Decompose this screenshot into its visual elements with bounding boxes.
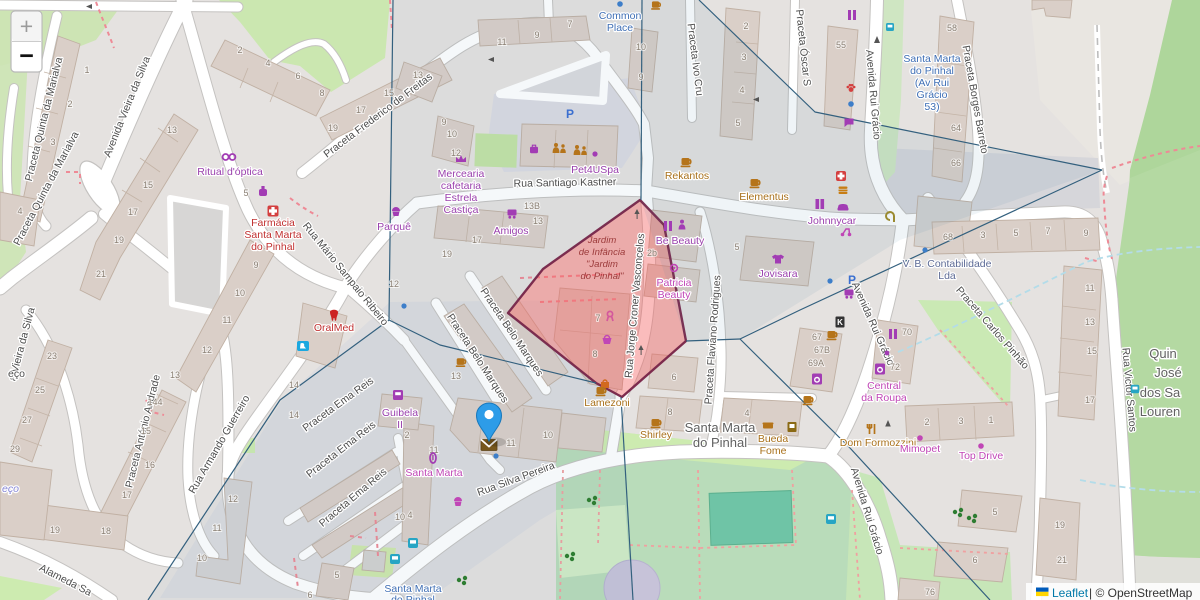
svg-text:3: 3 [741,52,746,62]
svg-text:8: 8 [319,88,324,98]
svg-text:17: 17 [128,207,138,217]
svg-text:9: 9 [1083,228,1088,238]
svg-text:4: 4 [17,206,22,216]
svg-text:67B: 67B [814,345,830,355]
svg-text:do Pinhal: do Pinhal [693,435,747,450]
svg-text:−: − [19,42,34,70]
svg-text:8: 8 [592,349,597,359]
svg-text:Castiça: Castiça [443,204,478,216]
svg-text:11: 11 [506,438,515,448]
svg-text:5: 5 [334,570,339,580]
svg-text:5: 5 [243,188,248,198]
svg-text:Quin: Quin [1149,346,1176,361]
svg-text:Santa Marta: Santa Marta [405,467,462,479]
svg-text:53): 53) [924,101,939,113]
svg-text:Santa Marta: Santa Marta [685,420,757,435]
svg-text:Louren: Louren [1140,404,1180,419]
svg-text:Johnnycar: Johnnycar [808,215,857,227]
svg-text:4: 4 [744,408,749,418]
svg-text:P: P [848,273,856,287]
svg-text:3: 3 [980,230,985,240]
svg-text:13: 13 [413,70,423,80]
svg-text:13: 13 [167,125,177,135]
svg-text:Leaflet: Leaflet [1052,586,1089,600]
svg-text:21: 21 [96,269,106,279]
svg-text:"Jardim: "Jardim [586,259,618,270]
svg-text:do Pinhal: do Pinhal [251,241,295,253]
svg-text:de Infância: de Infância [579,247,625,258]
svg-text:17: 17 [122,490,132,500]
svg-text:2: 2 [67,99,72,109]
svg-text:4: 4 [407,510,412,520]
svg-text:19: 19 [114,235,124,245]
svg-text:19: 19 [50,525,60,535]
svg-text:Central: Central [867,380,901,392]
svg-text:do Pinhal: do Pinhal [391,594,435,600]
svg-text:72: 72 [890,362,900,372]
svg-text:OralMed: OralMed [314,322,354,334]
svg-text:Mercearia: Mercearia [438,168,485,180]
svg-text:19: 19 [328,123,338,133]
svg-text:12: 12 [389,279,399,289]
svg-text:58: 58 [947,23,957,33]
svg-text:11: 11 [212,523,221,533]
svg-text:+: + [20,13,33,39]
svg-text:Shirley: Shirley [640,429,673,441]
svg-text:23: 23 [47,351,57,361]
svg-text:Guibela: Guibela [382,407,418,419]
svg-text:6: 6 [307,590,312,600]
svg-text:5: 5 [992,507,997,517]
svg-text:8: 8 [667,407,672,417]
svg-text:13: 13 [451,371,461,381]
svg-text:Be Beauty: Be Beauty [656,235,705,247]
svg-text:15: 15 [384,88,394,98]
svg-text:6: 6 [972,555,977,565]
svg-text:69A: 69A [808,358,824,368]
svg-text:10: 10 [235,288,245,298]
svg-text:10: 10 [197,553,207,563]
svg-text:da Roupa: da Roupa [861,392,907,404]
svg-text:2: 2 [237,45,242,55]
svg-text:7: 7 [1045,226,1050,236]
svg-text:16: 16 [145,460,155,470]
svg-text:7: 7 [595,313,600,323]
svg-text:1: 1 [988,415,993,425]
svg-text:| © OpenStreetMap: | © OpenStreetMap [1089,586,1193,600]
svg-text:Fome: Fome [760,445,787,457]
svg-text:Jardim: Jardim [587,235,617,246]
svg-text:Pet4USpa: Pet4USpa [571,164,619,176]
svg-text:4: 4 [739,85,744,95]
svg-text:K: K [837,318,843,327]
svg-text:76: 76 [925,587,935,597]
svg-text:68: 68 [943,232,953,242]
svg-text:5: 5 [734,242,739,252]
svg-text:6: 6 [671,372,676,382]
svg-text:12: 12 [228,494,238,504]
svg-text:Ritual d'óptica: Ritual d'óptica [197,166,263,178]
svg-text:3: 3 [958,416,963,426]
svg-text:dos Sa: dos Sa [1140,385,1181,400]
svg-text:II: II [397,419,403,431]
svg-text:Rekantos: Rekantos [665,170,709,182]
svg-text:11: 11 [497,37,506,47]
svg-text:Farmácia: Farmácia [251,217,295,229]
svg-text:70: 70 [902,327,912,337]
svg-text:P: P [566,107,574,121]
svg-text:cafetaria: cafetaria [441,180,481,192]
svg-text:eço: eço [8,368,25,380]
svg-text:do Pinhal: do Pinhal [910,65,954,77]
svg-text:Santa Marta: Santa Marta [244,229,301,241]
svg-text:17: 17 [356,105,366,115]
svg-text:5: 5 [1013,228,1018,238]
svg-text:5: 5 [735,118,740,128]
svg-text:2: 2 [743,21,748,31]
svg-text:9: 9 [638,72,643,82]
svg-text:Common: Common [599,10,642,22]
svg-text:13: 13 [170,370,180,380]
svg-text:Patricia: Patricia [656,277,691,289]
svg-text:1: 1 [84,65,89,75]
svg-text:Mimopet: Mimopet [900,443,940,455]
svg-text:Jovisara: Jovisara [758,268,797,280]
svg-text:66: 66 [951,158,961,168]
svg-text:Grácio: Grácio [917,89,948,101]
svg-text:Place: Place [607,22,633,34]
svg-text:9: 9 [253,260,258,270]
svg-text:14: 14 [289,380,299,390]
svg-text:14: 14 [289,410,299,420]
svg-text:3: 3 [50,137,55,147]
svg-text:10: 10 [636,42,646,52]
svg-text:11: 11 [1085,283,1094,293]
svg-text:12: 12 [451,148,461,158]
svg-text:13B: 13B [524,201,540,211]
svg-text:17: 17 [1085,395,1095,405]
svg-text:Santa Marta: Santa Marta [903,53,960,65]
svg-text:4: 4 [265,58,270,68]
svg-text:eço: eço [2,483,19,495]
svg-text:13: 13 [1085,317,1095,327]
svg-text:29: 29 [10,444,20,454]
svg-text:55: 55 [836,40,846,50]
svg-text:9: 9 [534,30,539,40]
svg-text:Elementus: Elementus [739,191,789,203]
svg-text:18: 18 [101,526,111,536]
svg-text:7: 7 [567,19,572,29]
svg-text:Amigos: Amigos [493,225,528,237]
svg-text:21: 21 [1057,555,1067,565]
svg-text:27: 27 [22,415,32,425]
svg-text:10: 10 [395,512,405,522]
svg-text:9: 9 [441,117,446,127]
svg-text:Top Drive: Top Drive [959,450,1004,462]
svg-text:15: 15 [1087,346,1097,356]
svg-text:Lda: Lda [938,270,956,282]
svg-text:15: 15 [143,180,153,190]
svg-text:10: 10 [447,129,457,139]
svg-text:do Pinhal": do Pinhal" [581,271,625,282]
svg-text:15: 15 [141,426,151,436]
svg-text:64: 64 [951,123,961,133]
svg-text:25: 25 [35,385,45,395]
svg-text:2: 2 [404,430,409,440]
svg-text:José: José [1154,365,1181,380]
svg-text:Beauty: Beauty [658,289,691,301]
svg-text:2: 2 [924,417,929,427]
svg-text:V. B. Contabilidade: V. B. Contabilidade [903,258,992,270]
svg-text:144: 144 [147,397,162,407]
svg-text:(Av Rui: (Av Rui [915,77,949,89]
svg-text:Lamezoni: Lamezoni [584,397,630,409]
svg-text:10: 10 [543,430,553,440]
svg-text:17: 17 [472,235,482,245]
svg-text:19: 19 [1055,520,1065,530]
svg-text:2b: 2b [647,248,657,258]
svg-text:19: 19 [442,249,452,259]
svg-text:Estrela: Estrela [445,192,478,204]
svg-text:Rua Santiago Kastner: Rua Santiago Kastner [513,176,616,190]
svg-text:13: 13 [533,216,543,226]
svg-text:12: 12 [202,345,212,355]
svg-text:11: 11 [222,315,231,325]
svg-text:Parquê: Parquê [377,221,411,233]
svg-text:Bueda: Bueda [758,433,789,445]
svg-text:67: 67 [812,332,822,342]
svg-text:6: 6 [295,71,300,81]
